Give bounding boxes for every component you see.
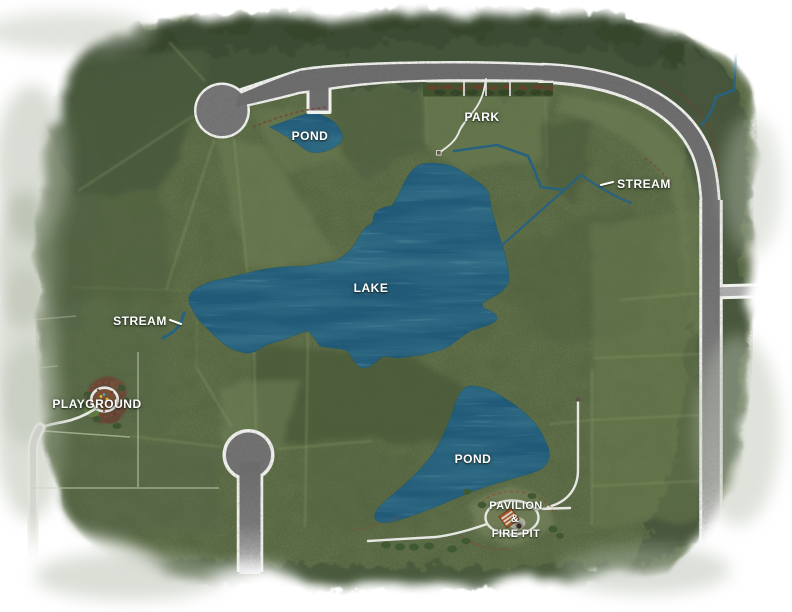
svg-text:PLAYGROUND: PLAYGROUND	[52, 397, 141, 411]
svg-text:&: &	[511, 513, 519, 525]
svg-text:POND: POND	[292, 129, 329, 143]
svg-text:POND: POND	[455, 452, 492, 466]
svg-text:STREAM: STREAM	[617, 177, 671, 191]
svg-text:PARK: PARK	[464, 110, 499, 124]
svg-text:LAKE: LAKE	[354, 281, 389, 295]
svg-text:FIRE PIT: FIRE PIT	[492, 528, 540, 540]
svg-text:PAVILION: PAVILION	[489, 500, 542, 512]
svg-text:STREAM: STREAM	[113, 314, 167, 328]
